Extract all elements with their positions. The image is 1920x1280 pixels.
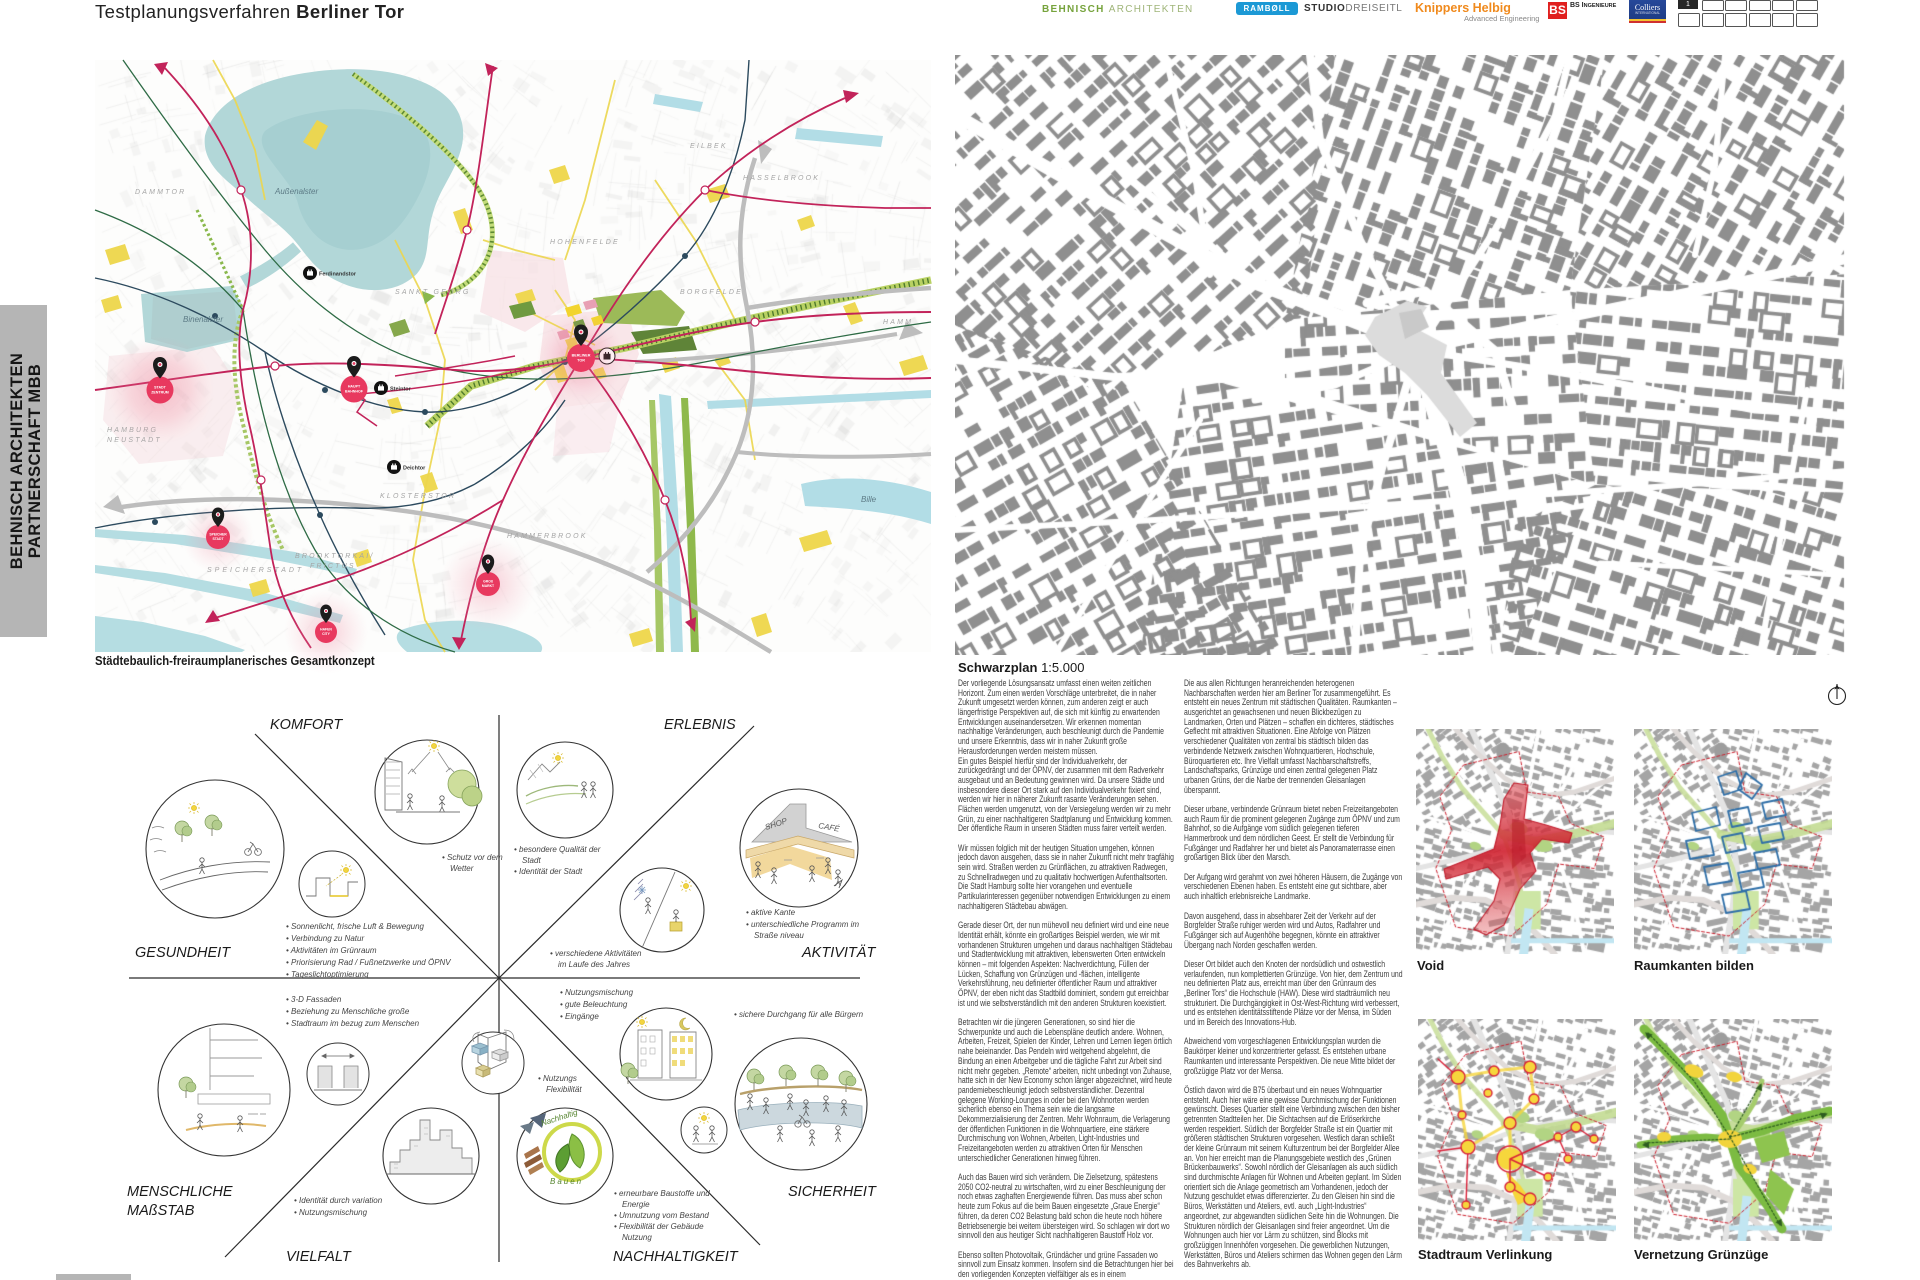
svg-text:HAUPT: HAUPT bbox=[348, 385, 361, 389]
svg-text:Bille: Bille bbox=[861, 495, 877, 504]
svg-text:HAMM: HAMM bbox=[883, 319, 913, 326]
svg-text:Energie: Energie bbox=[622, 1200, 650, 1209]
svg-text:• Identität durch variation: • Identität durch variation bbox=[294, 1196, 383, 1205]
svg-text:HASSELBROOK: HASSELBROOK bbox=[743, 175, 820, 182]
svg-text:Deichtor: Deichtor bbox=[403, 466, 426, 472]
svg-text:• Nutzungsmischung: • Nutzungsmischung bbox=[294, 1208, 368, 1217]
svg-text:AKTIVITÄT: AKTIVITÄT bbox=[801, 944, 876, 961]
svg-text:HAFEN: HAFEN bbox=[320, 628, 332, 632]
svg-text:Außenalster: Außenalster bbox=[274, 187, 318, 196]
svg-text:STADT: STADT bbox=[212, 537, 224, 541]
svg-text:Straße niveau: Straße niveau bbox=[754, 931, 804, 940]
svg-text:Binenalster: Binenalster bbox=[183, 315, 223, 324]
svg-text:• Schutz vor dem: • Schutz vor dem bbox=[442, 853, 503, 862]
svg-text:Wetter: Wetter bbox=[450, 864, 474, 873]
svg-text:Ferdinandstor: Ferdinandstor bbox=[319, 272, 357, 278]
svg-text:ERLEBNIS: ERLEBNIS bbox=[664, 717, 736, 733]
svg-text:• Beziehung zu Menschliche g: • Beziehung zu Menschliche große bbox=[286, 1007, 410, 1016]
svg-text:VIELFALT: VIELFALT bbox=[286, 1249, 352, 1265]
svg-text:MARKT: MARKT bbox=[482, 584, 495, 588]
svg-text:BAHNHOF: BAHNHOF bbox=[345, 390, 364, 394]
svg-text:HAMMERBROOK: HAMMERBROOK bbox=[507, 533, 588, 540]
svg-text:MENSCHLICHE: MENSCHLICHE bbox=[127, 1184, 233, 1200]
svg-text:KLOSTERSTOR: KLOSTERSTOR bbox=[380, 493, 456, 500]
svg-text:Steintor: Steintor bbox=[390, 387, 412, 393]
svg-text:MAßSTAB: MAßSTAB bbox=[127, 1203, 195, 1219]
svg-text:TOR: TOR bbox=[577, 359, 585, 363]
svg-text:• Umnutzung vom Bestand: • Umnutzung vom Bestand bbox=[614, 1211, 709, 1220]
svg-text:BERLINER: BERLINER bbox=[572, 354, 591, 358]
svg-text:im Laufe des Jahres: im Laufe des Jahres bbox=[558, 960, 630, 969]
svg-text:DAMMTOR: DAMMTOR bbox=[135, 189, 186, 196]
svg-text:ZENTRUM: ZENTRUM bbox=[151, 391, 169, 395]
svg-text:• Eingänge: • Eingänge bbox=[560, 1012, 599, 1021]
svg-text:• Sonnenlicht, frische Luft: • Sonnenlicht, frische Luft & Bewegung bbox=[286, 922, 425, 931]
svg-text:BORGFELDE: BORGFELDE bbox=[680, 289, 743, 296]
svg-text:GROß: GROß bbox=[483, 580, 493, 584]
svg-text:• Stadtraum im bezug zum Men: • Stadtraum im bezug zum Menschen bbox=[286, 1019, 420, 1028]
svg-text:• Verbindung zu Natur: • Verbindung zu Natur bbox=[286, 934, 364, 943]
svg-text:• erneurbare Baustoffe und: • erneurbare Baustoffe und bbox=[614, 1189, 710, 1198]
svg-text:SANKT GEORG: SANKT GEORG bbox=[395, 289, 471, 296]
svg-text:Stadt: Stadt bbox=[522, 856, 541, 865]
svg-text:EILBEK: EILBEK bbox=[690, 143, 728, 150]
svg-text:HOHENFELDE: HOHENFELDE bbox=[550, 239, 620, 246]
svg-text:• 3-D Fassaden: • 3-D Fassaden bbox=[286, 995, 342, 1004]
svg-text:CITY: CITY bbox=[322, 632, 330, 636]
svg-text:FRICTUS: FRICTUS bbox=[310, 563, 356, 570]
svg-text:STADT: STADT bbox=[154, 386, 167, 390]
svg-text:• sichere Durchgang für alle: • sichere Durchgang für alle Bürgern bbox=[734, 1010, 864, 1019]
svg-text:Flexibilität: Flexibilität bbox=[546, 1085, 582, 1094]
svg-text:• besondere Qualität der: • besondere Qualität der bbox=[514, 845, 601, 854]
svg-text:• verschiedene Aktivitäten: • verschiedene Aktivitäten bbox=[550, 949, 642, 958]
svg-text:SICHERHEIT: SICHERHEIT bbox=[788, 1184, 877, 1200]
svg-text:• Nutzungs: • Nutzungs bbox=[538, 1074, 577, 1083]
svg-text:NACHHALTIGKEIT: NACHHALTIGKEIT bbox=[613, 1249, 739, 1265]
svg-text:• gute Beleuchtung: • gute Beleuchtung bbox=[560, 1000, 628, 1009]
svg-text:• unterschiedliche Programm: • unterschiedliche Programm im bbox=[746, 920, 859, 929]
svg-text:• Identität der Stadt: • Identität der Stadt bbox=[514, 867, 583, 876]
svg-text:• Tageslichtoptimierung: • Tageslichtoptimierung bbox=[286, 970, 369, 979]
svg-text:GESUNDHEIT: GESUNDHEIT bbox=[135, 945, 231, 961]
svg-text:• aktive Kante: • aktive Kante bbox=[746, 908, 796, 917]
svg-text:KOMFORT: KOMFORT bbox=[270, 717, 343, 733]
svg-text:• Aktivitäten im Grünraum: • Aktivitäten im Grünraum bbox=[286, 946, 377, 955]
svg-text:SPEICHER: SPEICHER bbox=[209, 533, 227, 537]
svg-text:Bauen: Bauen bbox=[550, 1177, 583, 1186]
svg-text:• Nutzungsmischung: • Nutzungsmischung bbox=[560, 988, 634, 997]
svg-text:BROOKTORKAI/: BROOKTORKAI/ bbox=[295, 553, 375, 560]
svg-text:• Priorisierung Rad / Fußnet: • Priorisierung Rad / Fußnetzwerke und Ö… bbox=[286, 958, 451, 967]
svg-text:• Flexibilität der Gebäude: • Flexibilität der Gebäude bbox=[614, 1222, 704, 1231]
svg-text:Nutzung: Nutzung bbox=[622, 1233, 652, 1242]
